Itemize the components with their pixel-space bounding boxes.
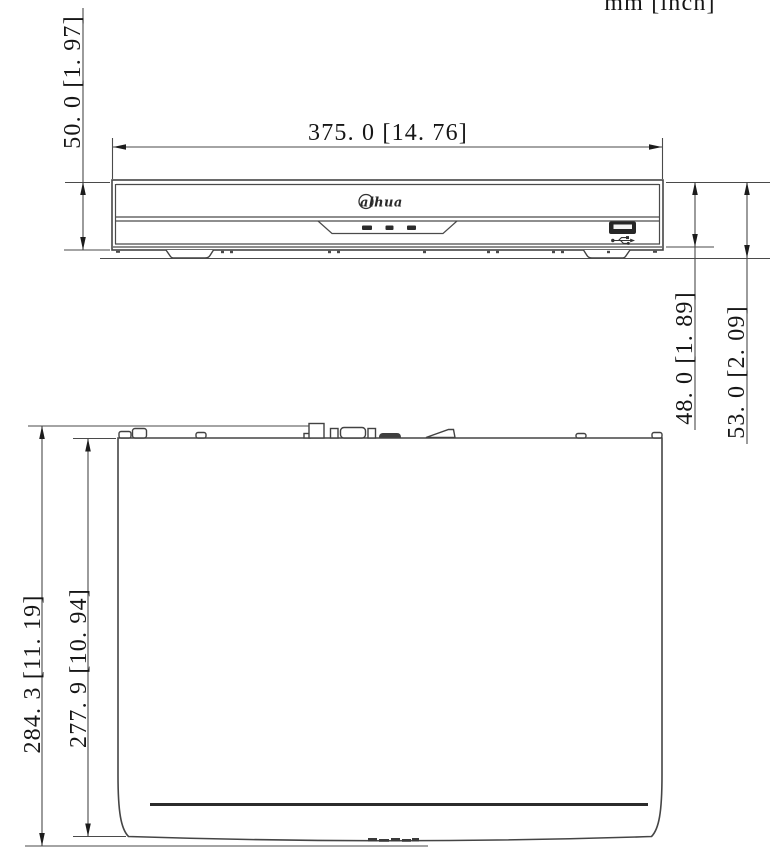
led-indicators <box>362 226 416 231</box>
connector-bump <box>196 433 206 439</box>
dim-label-overall-depth: 284. 3 [11. 19] <box>20 594 46 753</box>
dimension-drawing: mm [inch] alhua <box>0 0 773 865</box>
connector-screw <box>331 429 339 439</box>
connector-wedge <box>426 430 455 438</box>
dimension-body-depth-277: 277. 9 [10. 94] <box>66 438 126 837</box>
connector-tall <box>309 424 324 439</box>
connector-bump <box>652 433 662 439</box>
top-view-outline <box>118 438 662 841</box>
front-panel-outline <box>112 180 663 250</box>
dim-label-body-depth: 277. 9 [10. 94] <box>66 588 92 748</box>
dimension-height-50: 50. 0 [1. 97] <box>60 8 110 250</box>
dim-label-body-height: 48. 0 [1. 89] <box>672 291 698 425</box>
connector-low-bump <box>379 433 401 438</box>
dim-label-overall-height: 53. 0 [2. 09] <box>724 305 750 439</box>
vga-connector <box>341 428 366 439</box>
front-feet <box>166 250 630 258</box>
led-indicator-net <box>386 226 394 231</box>
connector-bump <box>119 432 131 439</box>
connector-bump <box>576 434 586 439</box>
dim-label-height-with-feet: 50. 0 [1. 97] <box>60 15 86 149</box>
dimension-width-375: 375. 0 [14. 76] <box>113 120 663 179</box>
dimension-body-height-48: 48. 0 [1. 89] <box>666 182 770 430</box>
led-indicator-pwr <box>407 226 416 231</box>
front-foot-left <box>166 250 214 258</box>
led-indicator-hdd <box>362 226 372 231</box>
top-view <box>118 424 662 842</box>
logo-text: alhua <box>360 196 403 211</box>
front-foot-right <box>584 250 631 258</box>
dim-label-width: 375. 0 [14. 76] <box>308 120 468 146</box>
connector-bump <box>133 429 147 439</box>
connector-screw <box>368 429 376 439</box>
front-view: alhua <box>112 180 663 258</box>
units-label: mm [inch] <box>604 0 715 16</box>
usb-socket-slot <box>614 225 633 230</box>
brand-logo: alhua <box>359 195 403 211</box>
